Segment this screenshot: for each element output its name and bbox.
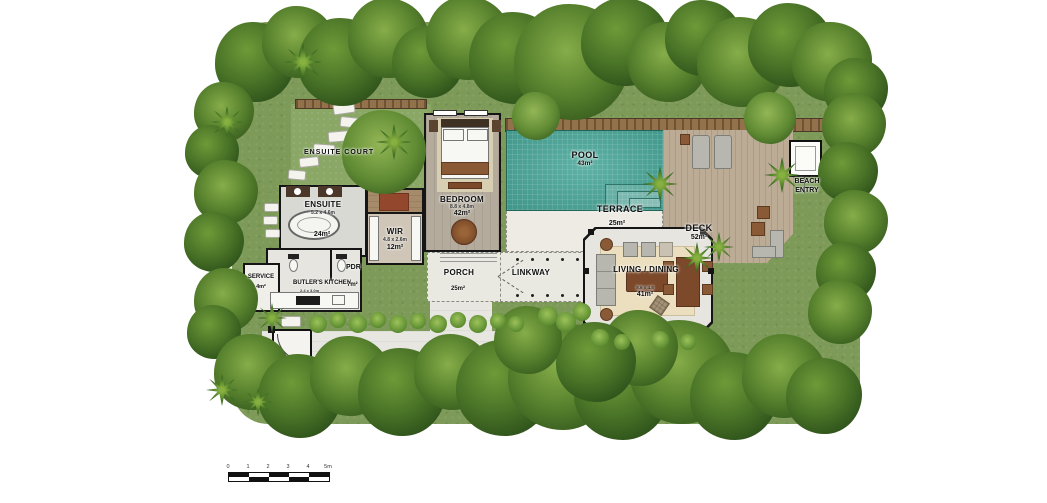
scale-bar bbox=[228, 472, 330, 482]
linkway bbox=[500, 252, 586, 302]
sun-lounger-icon bbox=[692, 135, 710, 169]
tree-canopy bbox=[342, 110, 426, 194]
window-icon bbox=[464, 110, 488, 116]
scale-tick: 5m bbox=[324, 464, 332, 470]
pool bbox=[506, 130, 664, 211]
porch-step bbox=[440, 257, 497, 258]
tree-canopy bbox=[184, 212, 244, 272]
bush-icon bbox=[538, 306, 558, 326]
basin-icon bbox=[326, 188, 333, 195]
paver-dot bbox=[576, 258, 579, 261]
wall-post bbox=[700, 229, 706, 235]
dining-chair-icon bbox=[702, 284, 713, 295]
beach-path-line bbox=[804, 177, 806, 193]
sun-lounger-icon bbox=[714, 135, 732, 169]
porch-step bbox=[440, 261, 497, 262]
pool-steps-icon bbox=[629, 198, 661, 208]
porch-step bbox=[440, 253, 497, 254]
paver-dot bbox=[546, 258, 549, 261]
bush-icon bbox=[410, 313, 426, 329]
bush-icon bbox=[349, 315, 367, 333]
headboard-icon bbox=[441, 119, 489, 127]
paver-dot bbox=[516, 258, 519, 261]
side-table-icon bbox=[600, 238, 613, 251]
pillow-icon bbox=[467, 129, 488, 141]
stepping-stone bbox=[299, 156, 320, 168]
bush-icon bbox=[591, 329, 609, 347]
side-table-icon bbox=[600, 308, 613, 321]
bush-icon bbox=[370, 312, 386, 328]
vanity-icon bbox=[286, 186, 310, 197]
floor-plan-canvas: ENSUITE COURT ENSUITE 5.2 x 4.6m 24m² WI… bbox=[0, 0, 1047, 503]
bathtub-inner bbox=[297, 217, 331, 233]
nightstand-icon bbox=[492, 120, 501, 132]
bush-icon bbox=[614, 334, 630, 350]
scale-tick: 4 bbox=[306, 464, 309, 470]
bush-icon bbox=[490, 313, 506, 329]
toilet-icon bbox=[289, 259, 298, 272]
paver-dot bbox=[561, 294, 564, 297]
dining-chair-icon bbox=[663, 261, 674, 272]
rug-icon bbox=[379, 193, 409, 211]
wardrobe-icon bbox=[369, 216, 379, 261]
pouf-icon bbox=[751, 222, 765, 236]
stepping-stone bbox=[313, 143, 336, 156]
bed-bench-icon bbox=[448, 182, 482, 189]
bush-icon bbox=[330, 312, 346, 328]
scale-tick: 0 bbox=[226, 464, 229, 470]
sofa-icon bbox=[596, 254, 616, 306]
coffee-table-icon bbox=[626, 271, 668, 292]
basin-icon bbox=[294, 188, 301, 195]
tree-canopy bbox=[512, 92, 560, 140]
scale-tick: 1 bbox=[246, 464, 249, 470]
armchair-icon bbox=[641, 242, 656, 257]
stepping-stone bbox=[265, 229, 280, 238]
stepping-stone bbox=[264, 203, 279, 212]
wall-post bbox=[588, 229, 594, 235]
deck-sofa-icon bbox=[752, 246, 776, 258]
bush-icon bbox=[573, 303, 591, 321]
bush-icon bbox=[651, 331, 669, 349]
paver-dot bbox=[546, 294, 549, 297]
paver-dot bbox=[531, 294, 534, 297]
bush-icon bbox=[469, 315, 487, 333]
armchair-icon bbox=[623, 242, 638, 257]
tree-canopy bbox=[744, 92, 796, 144]
paver-dot bbox=[576, 294, 579, 297]
scale-tick: 3 bbox=[286, 464, 289, 470]
vanity-icon bbox=[318, 186, 342, 197]
gate-panel bbox=[795, 146, 816, 171]
bush-icon bbox=[680, 334, 696, 350]
wardrobe-icon bbox=[411, 216, 421, 261]
pillow-icon bbox=[443, 129, 464, 141]
bed-runner-icon bbox=[441, 162, 489, 175]
wall-post bbox=[708, 268, 714, 274]
tree-canopy bbox=[808, 280, 872, 344]
nightstand-icon bbox=[429, 120, 438, 132]
bush-icon bbox=[389, 315, 407, 333]
bush-icon bbox=[450, 312, 466, 328]
stepping-stone bbox=[263, 216, 278, 225]
paver-dot bbox=[531, 258, 534, 261]
wall-post bbox=[583, 268, 589, 274]
scale-tick: 2 bbox=[266, 464, 269, 470]
pdr-wall bbox=[330, 248, 332, 281]
paver-dot bbox=[516, 294, 519, 297]
tree-canopy bbox=[786, 358, 862, 434]
deck-side-table-icon bbox=[680, 134, 690, 145]
round-table-icon bbox=[451, 219, 477, 245]
paver-dot bbox=[561, 258, 564, 261]
window-icon bbox=[433, 110, 457, 116]
bathtub-icon bbox=[288, 210, 340, 240]
toilet-icon bbox=[337, 259, 346, 272]
pouf-icon bbox=[757, 206, 770, 219]
porch bbox=[427, 252, 508, 302]
cooktop-icon bbox=[296, 296, 320, 305]
armchair-icon bbox=[659, 242, 673, 257]
stepping-stone bbox=[288, 169, 307, 181]
sink-icon bbox=[332, 295, 345, 305]
bush-icon bbox=[508, 316, 524, 332]
dining-chair-icon bbox=[663, 284, 674, 295]
bush-icon bbox=[429, 315, 447, 333]
bush-icon bbox=[309, 315, 327, 333]
